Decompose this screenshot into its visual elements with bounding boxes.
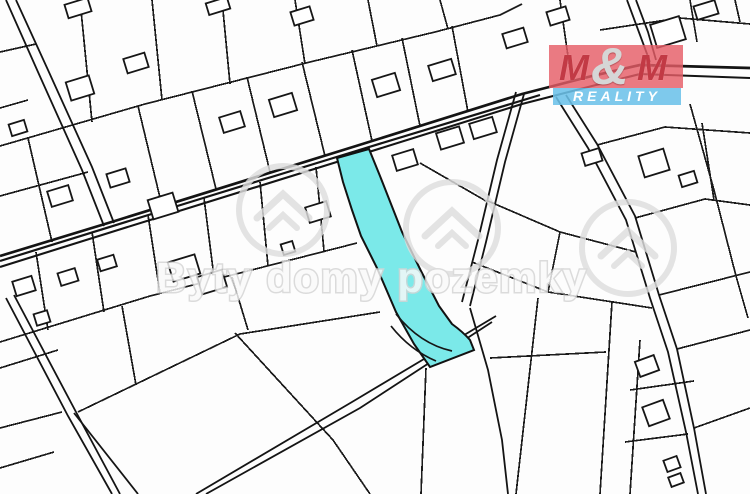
logo-ampersand: & — [591, 41, 629, 93]
watermark: Byty domy pozemky — [156, 166, 674, 301]
logo-letter-m-left: M — [559, 50, 589, 86]
cadastral-map-screenshot: Byty domy pozemky M & M REALITY — [0, 0, 750, 494]
logo-blue-box: REALITY — [553, 88, 681, 105]
house-in-circle-icon — [582, 202, 674, 294]
logo-letter-m-right: M — [637, 50, 667, 86]
agency-logo: M & M REALITY — [549, 45, 683, 105]
logo-reality-text: REALITY — [573, 89, 661, 103]
watermark-text: Byty domy pozemky — [156, 254, 588, 301]
